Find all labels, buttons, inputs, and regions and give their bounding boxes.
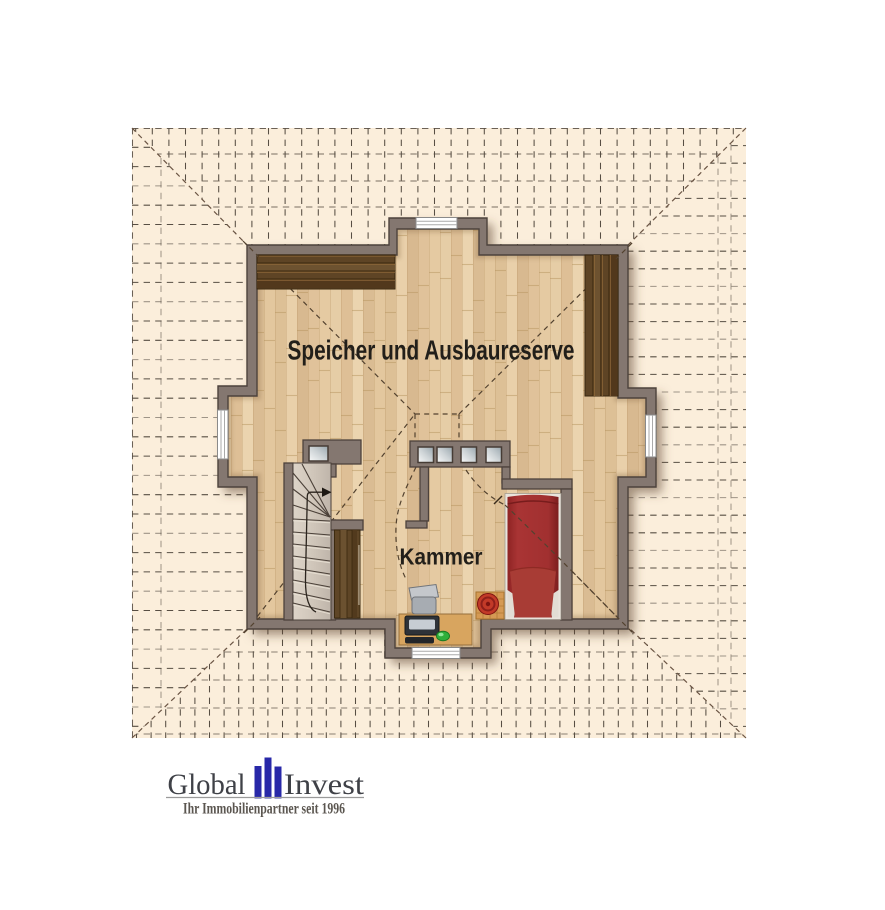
svg-text:Invest: Invest <box>284 768 365 801</box>
svg-text:Kammer: Kammer <box>400 544 483 570</box>
svg-text:Global: Global <box>168 768 246 801</box>
svg-text:Speicher und Ausbaureserve: Speicher und Ausbaureserve <box>288 335 575 366</box>
svg-text:Ihr Immobilienpartner seit 199: Ihr Immobilienpartner seit 1996 <box>183 801 345 818</box>
